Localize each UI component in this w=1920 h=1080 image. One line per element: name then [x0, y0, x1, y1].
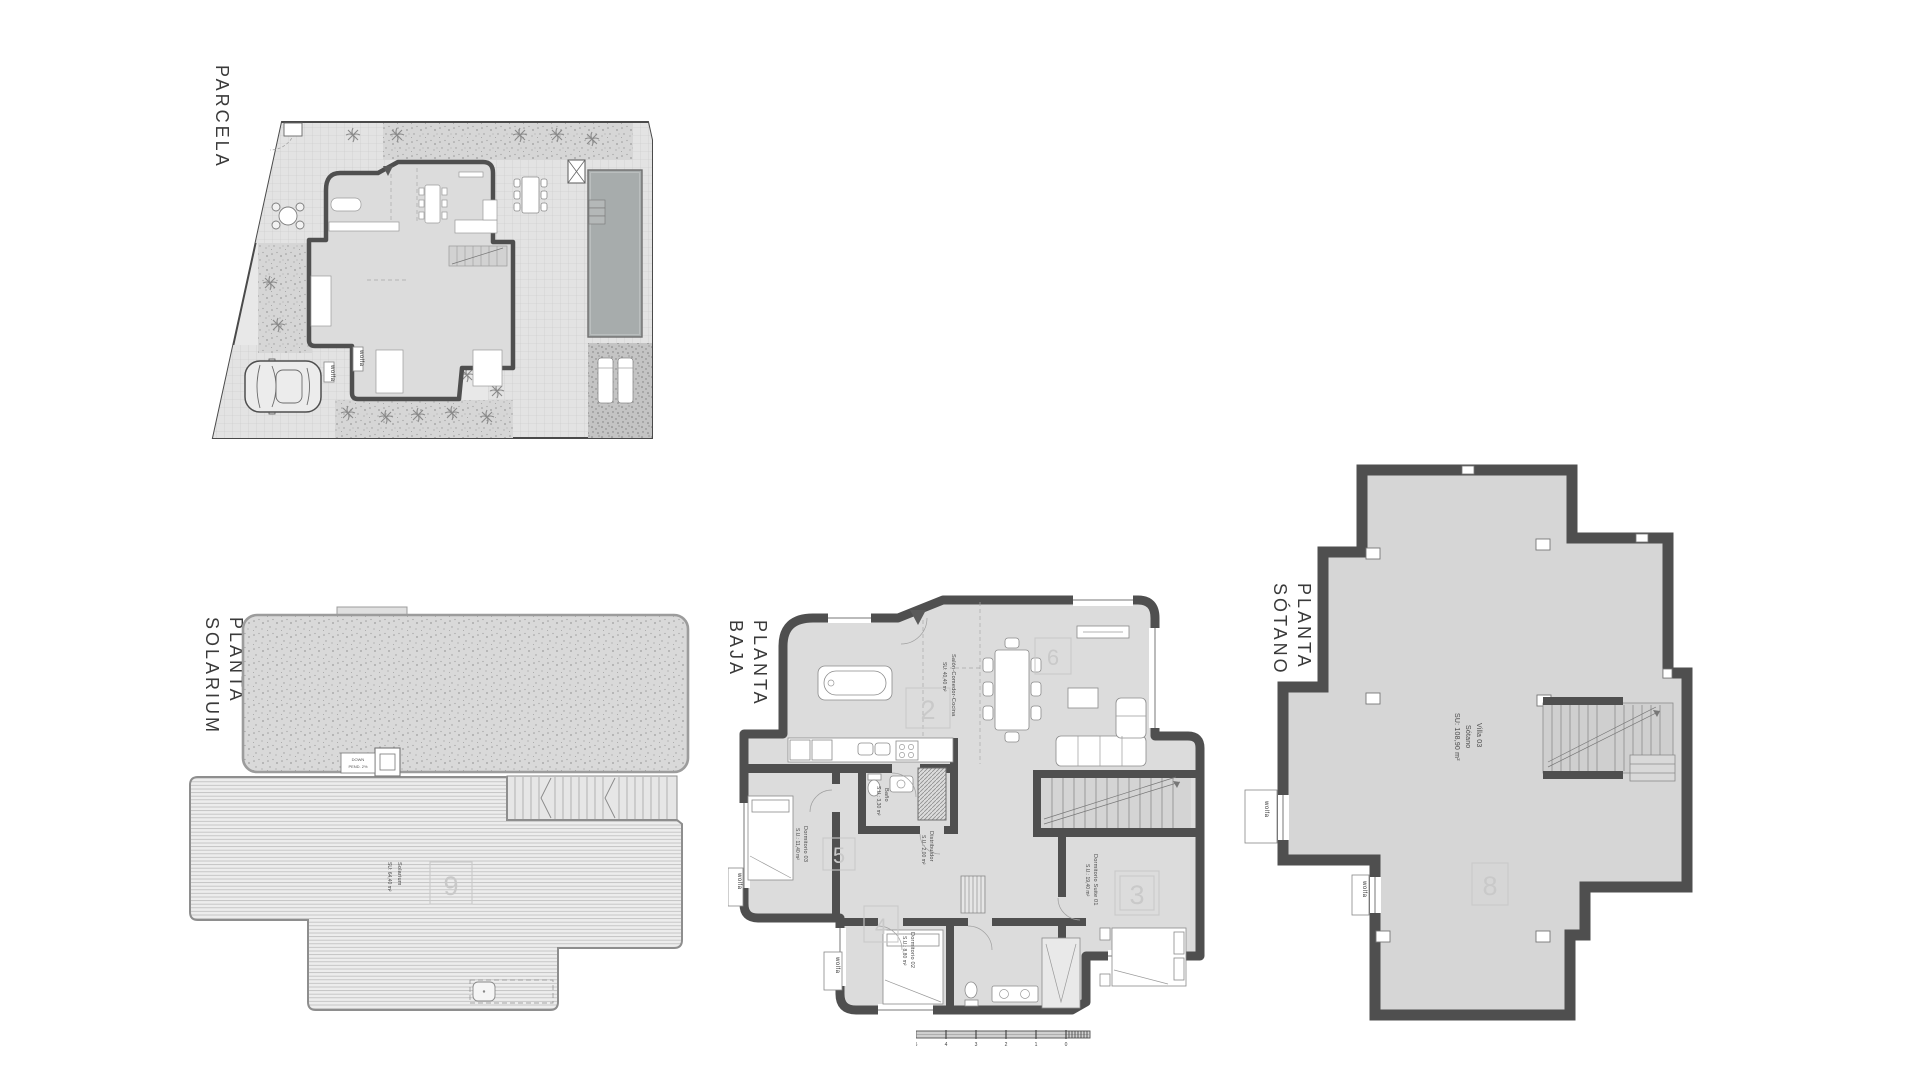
- svg-text:PEND. 2%: PEND. 2%: [348, 764, 368, 769]
- solarium-title: PLANTA SOLARIUM: [202, 617, 246, 735]
- garden-bed-bottom: [335, 400, 513, 438]
- svg-text:SÓTANO: SÓTANO: [1270, 583, 1291, 676]
- shower: [1042, 938, 1080, 1008]
- garden-bed-top: [383, 123, 633, 160]
- svg-text:2: 2: [920, 695, 935, 725]
- svg-text:BAJA: BAJA: [728, 620, 746, 677]
- svg-text:Villa 03: Villa 03: [1475, 723, 1482, 747]
- sotano-plan: PLANTA SÓTANO wolfa wolfa: [1240, 455, 1700, 1030]
- svg-text:Distribuidor: Distribuidor: [928, 831, 934, 862]
- svg-text:9: 9: [443, 871, 458, 901]
- solarium-plan: PLANTA SOLARIUM DOWN PEND. 2% Solarium S…: [140, 590, 700, 1030]
- svg-text:SU: 40,40 m²: SU: 40,40 m²: [941, 662, 947, 692]
- svg-text:S.U.: 8,80 m²: S.U.: 8,80 m²: [901, 936, 907, 966]
- svg-text:Sótano: Sótano: [1464, 725, 1471, 748]
- svg-text:wolfa: wolfa: [358, 349, 364, 367]
- svg-text:Salón-Comedor-Cocina: Salón-Comedor-Cocina: [950, 654, 956, 717]
- svg-text:3: 3: [1129, 880, 1144, 910]
- kitchen-counter: [788, 738, 953, 762]
- svg-text:S.U.: 11,40 m²: S.U.: 11,40 m²: [794, 828, 800, 860]
- svg-text:SOLARIUM: SOLARIUM: [202, 617, 222, 735]
- svg-text:wolfa: wolfa: [1361, 880, 1367, 898]
- bathtub: [818, 666, 892, 700]
- tv-unit: [1077, 626, 1129, 638]
- closet: [961, 876, 985, 913]
- roof-note: DOWN PEND. 2%: [341, 753, 375, 773]
- svg-text:PLANTA: PLANTA: [750, 620, 770, 707]
- svg-text:0: 0: [1065, 1042, 1068, 1048]
- svg-text:5: 5: [916, 1042, 918, 1048]
- bed-dorm03: [748, 796, 793, 880]
- wolfa-label: wolfa: [728, 868, 743, 906]
- svg-text:S.U.: 19,40 m²: S.U.: 19,40 m²: [1084, 864, 1090, 897]
- baja-plan: PLANTA BAJA wolfa wolfa: [728, 588, 1228, 1058]
- svg-text:4: 4: [945, 1042, 948, 1048]
- outdoor-dining-table: [514, 177, 547, 213]
- gravel-roof: [243, 615, 688, 772]
- svg-text:1: 1: [1035, 1042, 1038, 1048]
- svg-text:wolfa: wolfa: [834, 956, 840, 974]
- svg-text:wolfa: wolfa: [329, 364, 335, 382]
- floorplan-sheet: PARCELA: [0, 0, 1920, 1080]
- svg-text:6: 6: [1047, 645, 1059, 670]
- pergola-icon: [568, 160, 585, 183]
- svg-text:DOWN: DOWN: [352, 757, 365, 762]
- parcela-plan: PARCELA: [200, 55, 680, 455]
- svg-text:Dormitorio Suite 01: Dormitorio Suite 01: [1092, 854, 1098, 906]
- svg-text:wolfa: wolfa: [1263, 800, 1269, 818]
- sotano-title: PLANTA SÓTANO: [1270, 583, 1314, 676]
- house-stairs: [449, 246, 507, 266]
- skylight: [375, 748, 400, 776]
- pool: [588, 170, 642, 337]
- entry-structure: [284, 123, 302, 136]
- sotano-staircase: [1543, 697, 1675, 781]
- svg-text:8: 8: [1482, 871, 1497, 901]
- car: [245, 359, 321, 414]
- wolfa-label: wolfa: [1245, 790, 1289, 843]
- svg-text:4: 4: [875, 914, 887, 939]
- svg-text:SU: 64,40 m²: SU: 64,40 m²: [386, 862, 392, 892]
- scale-bar: 5 4 3 2 1 0: [916, 1028, 1116, 1050]
- wolfa-label: wolfa: [1352, 875, 1381, 915]
- svg-text:5: 5: [833, 843, 845, 868]
- wolfa-label: wolfa: [824, 952, 842, 990]
- svg-text:Baño: Baño: [883, 788, 889, 802]
- svg-text:S.U.: 2,00 m²: S.U.: 2,00 m²: [920, 835, 926, 865]
- svg-text:3: 3: [975, 1042, 978, 1048]
- baja-title: PLANTA BAJA: [728, 620, 770, 707]
- closet: [918, 768, 946, 820]
- svg-text:Dormitorio 03: Dormitorio 03: [802, 826, 808, 862]
- bed-suite: [1100, 928, 1186, 986]
- pool-steps-icon: [589, 200, 605, 224]
- svg-text:2: 2: [1005, 1042, 1008, 1048]
- coffee-table: [1068, 688, 1098, 708]
- parcela-title: PARCELA: [212, 65, 232, 169]
- baja-staircase: [1041, 777, 1191, 828]
- svg-text:SU: 108,90 m²: SU: 108,90 m²: [1453, 713, 1460, 761]
- svg-text:PLANTA: PLANTA: [1294, 583, 1314, 670]
- svg-text:Solarium: Solarium: [396, 862, 402, 886]
- svg-text:Dormitorio 02: Dormitorio 02: [909, 932, 915, 968]
- solarium-staircase: [507, 776, 677, 820]
- svg-text:wolfa: wolfa: [736, 872, 742, 890]
- garden-bed-left: [258, 243, 312, 353]
- svg-text:S.U.: 3,30 m²: S.U.: 3,30 m²: [875, 786, 881, 816]
